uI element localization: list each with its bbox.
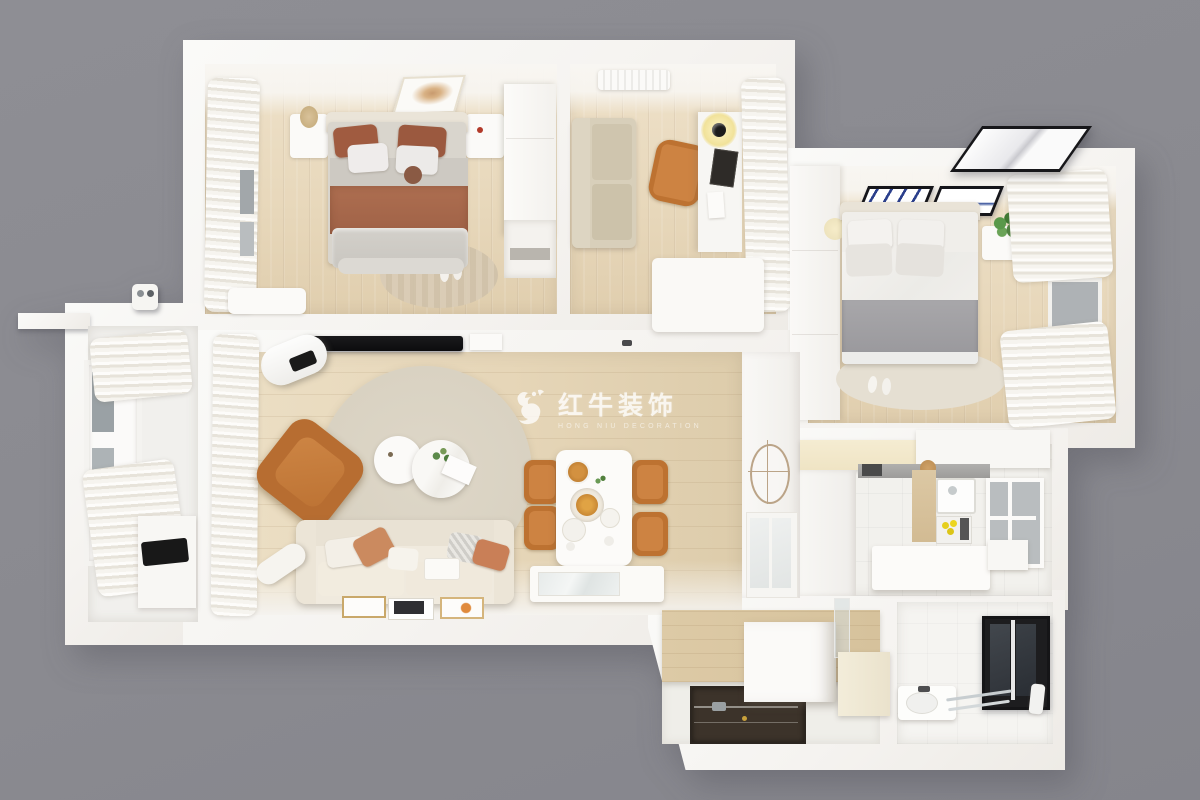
living-curtains — [211, 334, 259, 616]
kitchen-tall-cabinet — [800, 470, 856, 596]
kitchen-island-extension — [988, 540, 1028, 570]
bedroom1-wardrobe — [504, 84, 556, 236]
bedroom1-nightstand-right — [466, 114, 504, 158]
bedroom1-bench — [228, 288, 306, 314]
kitchen-window-mullion-h — [986, 516, 1036, 520]
glass-cabinet-pane-2 — [772, 518, 791, 588]
bedroom1-ball-pillow — [404, 166, 422, 184]
mirror-cross-v — [767, 440, 768, 504]
bull-icon — [512, 388, 550, 428]
bedroom2-pillow-4 — [895, 243, 945, 277]
dining-chair-2 — [524, 506, 560, 550]
kitchen-range-hood — [862, 464, 882, 476]
dining-food — [576, 494, 598, 516]
study-loveseat-back — [572, 118, 590, 248]
dining-cup-1 — [604, 536, 614, 546]
study-notepad — [707, 191, 725, 218]
entry-frosted-glass — [834, 598, 850, 658]
bathroom-window-bar — [1011, 620, 1015, 700]
kitchen-sink — [936, 478, 976, 514]
bedroom2-pillow-3 — [845, 243, 892, 277]
exterior-utility-box — [132, 284, 158, 310]
partition-oval-mirror — [750, 444, 790, 504]
bathroom-window-pane-1 — [990, 624, 1010, 696]
glass-cabinet-pane-1 — [750, 518, 769, 588]
dining-chair-4 — [632, 512, 668, 556]
wall-ledge-left — [18, 313, 90, 329]
study-ac-unit — [598, 70, 670, 90]
entry-bench — [838, 652, 890, 716]
entry-shoe-cabinet — [744, 622, 836, 702]
dining-chair-3 — [632, 460, 668, 504]
bathroom-basin — [906, 692, 938, 714]
bedroom2-curtain-top — [1006, 169, 1113, 284]
watermark-brand-en: HONG NIU DECORATION — [558, 423, 702, 430]
mat-stripe-1 — [694, 706, 798, 708]
bedroom1-dried-plant — [300, 106, 318, 128]
study-desk-lamp — [712, 123, 726, 137]
bathroom-faucet — [918, 686, 930, 692]
dining-cup-2 — [566, 542, 575, 551]
bedroom1-terracotta-throw — [330, 186, 468, 234]
living-tv — [305, 336, 463, 351]
bedroom1-foot-roll — [338, 258, 464, 274]
living-door-handle — [622, 340, 632, 346]
kitchen-wood-panel — [912, 470, 936, 542]
sofa-pillow-white-2 — [387, 547, 419, 572]
dining-plate-2 — [562, 518, 586, 542]
study-tablet — [710, 149, 739, 188]
mirror-cross-h — [748, 471, 790, 472]
bedroom1-window-glimpse — [240, 170, 254, 214]
kitchen-lemon-3 — [947, 528, 954, 535]
floor-frame-3 — [440, 597, 484, 619]
dining-bowl — [566, 460, 590, 484]
study-low-cabinet — [652, 258, 764, 332]
balcony-black-tray — [141, 538, 189, 567]
floor-frame-2-art — [394, 601, 424, 614]
bedroom1-shelf-slot — [510, 248, 550, 260]
kitchen-island — [872, 546, 990, 590]
balcony-curtain-top — [89, 329, 193, 403]
bedroom1-nightstand-lamp — [477, 127, 483, 133]
watermark-brand-cn: 红牛装饰 — [558, 386, 702, 422]
study-loveseat-cushion-2 — [592, 184, 632, 240]
bedroom2-curtain-bottom — [999, 321, 1117, 430]
kitchen-faucet — [948, 486, 957, 495]
utility-box-dot-1 — [137, 290, 144, 297]
sofa-tray — [424, 558, 460, 580]
bedroom1-pillow-white-1 — [347, 143, 389, 174]
living-media-shelf — [470, 334, 502, 350]
kitchen-appliance-panel — [960, 518, 969, 540]
floor-frame-1 — [342, 596, 386, 618]
bedroom1-wall-art — [392, 75, 466, 115]
entry-metal-fitting — [712, 702, 726, 711]
bedroom2-foot-sheet — [842, 352, 978, 364]
dining-chair-1 — [524, 460, 560, 504]
watermark: 红牛装饰 HONG NIU DECORATION — [512, 386, 702, 430]
sideboard-glass-top — [538, 572, 620, 596]
bedroom2-gray-blanket — [842, 300, 978, 358]
floor-plan-render: 红牛装饰 HONG NIU DECORATION — [0, 0, 1200, 800]
utility-box-dot-2 — [147, 290, 154, 297]
dining-greens — [590, 472, 610, 490]
bedroom1-window-glimpse-2 — [240, 222, 254, 256]
kitchen-upper-cabinets — [916, 430, 1050, 468]
dining-plate-3 — [600, 508, 620, 528]
mat-stripe-2 — [694, 722, 798, 723]
kitchen-lemon-2 — [950, 520, 957, 527]
entry-gold-dot — [742, 716, 747, 721]
study-loveseat-cushion-1 — [592, 124, 632, 180]
coffee-decor-dot — [388, 452, 393, 457]
